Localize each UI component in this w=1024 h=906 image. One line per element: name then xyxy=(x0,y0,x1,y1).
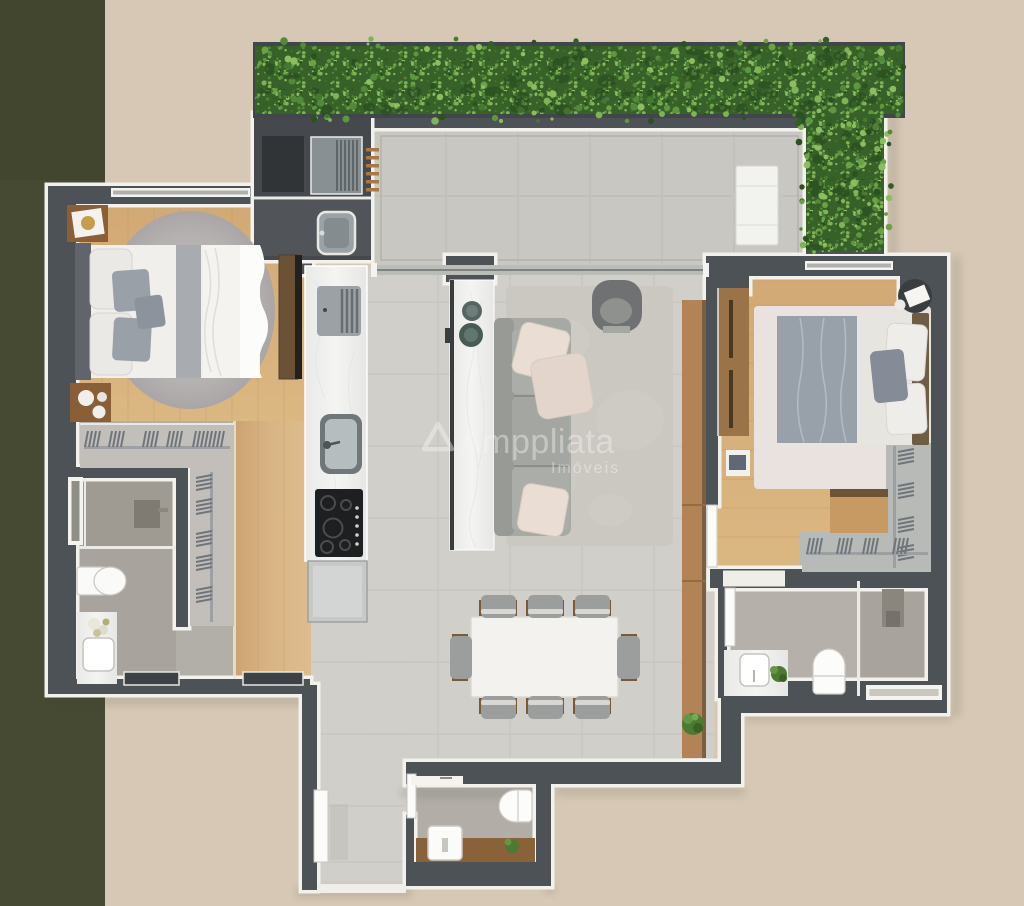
svg-text:Imóveis: Imóveis xyxy=(551,460,620,477)
svg-text:Amppliata: Amppliata xyxy=(459,423,615,461)
